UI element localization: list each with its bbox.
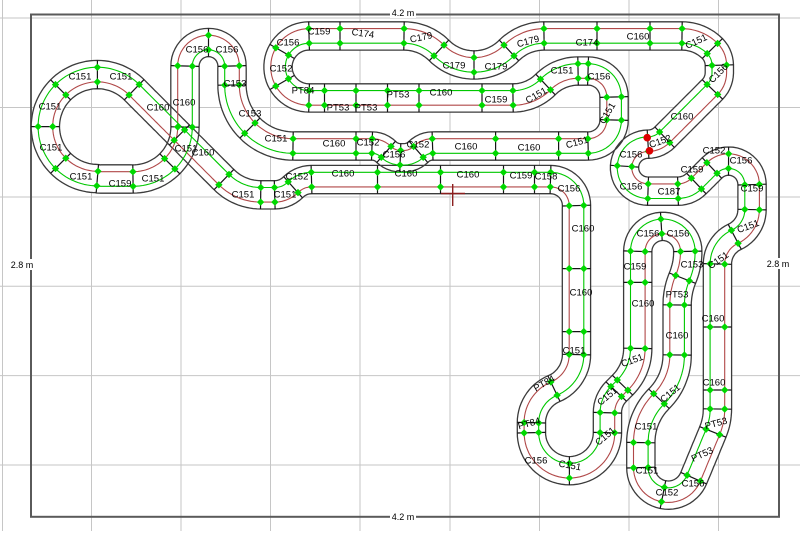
svg-text:C160: C160 — [173, 98, 196, 109]
svg-text:2.8 m: 2.8 m — [767, 259, 790, 269]
svg-text:PT53: PT53 — [387, 90, 410, 101]
svg-text:C179: C179 — [485, 62, 508, 73]
svg-text:C160: C160 — [455, 142, 478, 153]
svg-text:C152: C152 — [270, 64, 293, 75]
svg-text:C151: C151 — [635, 422, 658, 433]
svg-text:C179: C179 — [443, 61, 466, 72]
svg-text:C151: C151 — [232, 190, 255, 201]
svg-text:C156: C156 — [186, 45, 209, 56]
svg-text:C160: C160 — [457, 170, 480, 181]
svg-text:C160: C160 — [323, 139, 346, 150]
svg-text:2.8 m: 2.8 m — [11, 260, 34, 270]
svg-text:C151: C151 — [636, 466, 659, 477]
svg-text:C159: C159 — [681, 165, 704, 176]
svg-text:C160: C160 — [572, 224, 595, 235]
svg-text:C160: C160 — [192, 148, 215, 159]
svg-text:C156: C156 — [383, 150, 406, 161]
svg-text:C160: C160 — [703, 378, 726, 389]
svg-text:C160: C160 — [518, 143, 541, 154]
svg-text:C159: C159 — [308, 27, 331, 38]
svg-text:C156: C156 — [588, 72, 611, 83]
svg-text:C151: C151 — [563, 346, 586, 357]
svg-text:C156: C156 — [525, 456, 548, 467]
svg-text:C160: C160 — [632, 299, 655, 310]
svg-text:C160: C160 — [395, 169, 418, 180]
svg-text:C151: C151 — [274, 190, 297, 201]
svg-text:C156: C156 — [620, 182, 643, 193]
svg-text:C151: C151 — [265, 134, 288, 145]
svg-text:C156: C156 — [682, 479, 705, 490]
svg-text:C152: C152 — [703, 146, 726, 157]
svg-text:C156: C156 — [667, 229, 690, 240]
svg-text:C153: C153 — [239, 109, 262, 120]
svg-text:C156: C156 — [620, 150, 643, 161]
svg-text:C160: C160 — [627, 32, 650, 43]
svg-text:C174: C174 — [576, 38, 599, 49]
svg-text:C151: C151 — [70, 172, 93, 183]
svg-text:C152: C152 — [656, 488, 679, 499]
svg-text:C151: C151 — [551, 66, 574, 77]
svg-text:C151: C151 — [39, 102, 62, 113]
svg-text:C160: C160 — [430, 88, 453, 99]
svg-text:PT53: PT53 — [327, 103, 350, 114]
svg-text:C153: C153 — [681, 260, 704, 271]
svg-text:C159: C159 — [510, 171, 533, 182]
svg-text:C152: C152 — [357, 138, 380, 149]
svg-text:C151: C151 — [110, 72, 133, 83]
svg-text:4.2 m: 4.2 m — [392, 8, 415, 18]
svg-text:C158: C158 — [535, 172, 558, 183]
svg-text:C156: C156 — [216, 45, 239, 56]
svg-text:C160: C160 — [666, 331, 689, 342]
svg-text:C151: C151 — [40, 143, 63, 154]
svg-text:C153: C153 — [224, 79, 247, 90]
svg-text:PT53: PT53 — [666, 290, 689, 301]
svg-text:C159: C159 — [109, 179, 132, 190]
svg-text:PT84: PT84 — [292, 86, 315, 97]
svg-text:C151: C151 — [142, 174, 165, 185]
svg-text:C151: C151 — [69, 72, 92, 83]
svg-text:4.2 m: 4.2 m — [392, 512, 415, 522]
svg-text:C160: C160 — [332, 169, 355, 180]
svg-text:C159: C159 — [624, 262, 647, 273]
svg-text:C152: C152 — [407, 140, 430, 151]
svg-text:C159: C159 — [741, 184, 764, 195]
svg-text:C159: C159 — [485, 95, 508, 106]
svg-text:C160: C160 — [147, 103, 170, 114]
svg-text:C187: C187 — [658, 187, 681, 198]
svg-text:C152: C152 — [286, 172, 309, 183]
svg-text:C160: C160 — [671, 112, 694, 123]
svg-text:C156: C156 — [558, 184, 581, 195]
svg-text:C156: C156 — [637, 229, 660, 240]
svg-text:C160: C160 — [570, 288, 593, 299]
svg-text:C160: C160 — [702, 314, 725, 325]
svg-text:C156: C156 — [277, 38, 300, 49]
svg-text:PT53: PT53 — [355, 103, 378, 114]
svg-text:C156: C156 — [730, 156, 753, 167]
